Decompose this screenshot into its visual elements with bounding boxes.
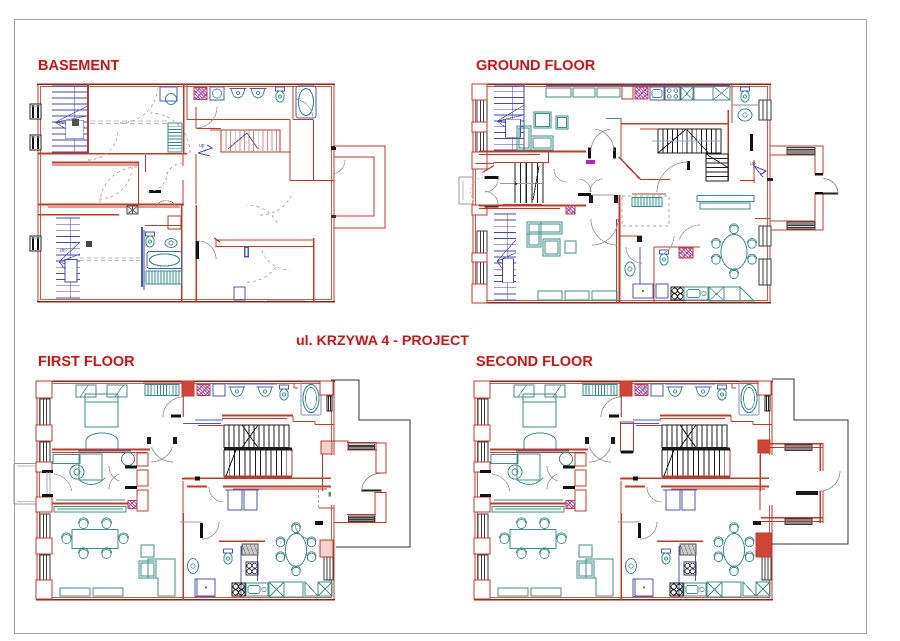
svg-text:up: up	[750, 161, 756, 167]
svg-text:SECOND FLOOR: SECOND FLOOR	[476, 354, 593, 370]
svg-text:GROUND FLOOR: GROUND FLOOR	[476, 58, 596, 74]
svg-text:up: up	[199, 143, 205, 149]
svg-text:FIRST FLOOR: FIRST FLOOR	[38, 354, 135, 370]
svg-text:BASEMENT: BASEMENT	[38, 58, 120, 74]
svg-text:ul. KRZYWA 4 - PROJECT: ul. KRZYWA 4 - PROJECT	[296, 333, 469, 349]
svg-text:dn: dn	[60, 248, 66, 254]
